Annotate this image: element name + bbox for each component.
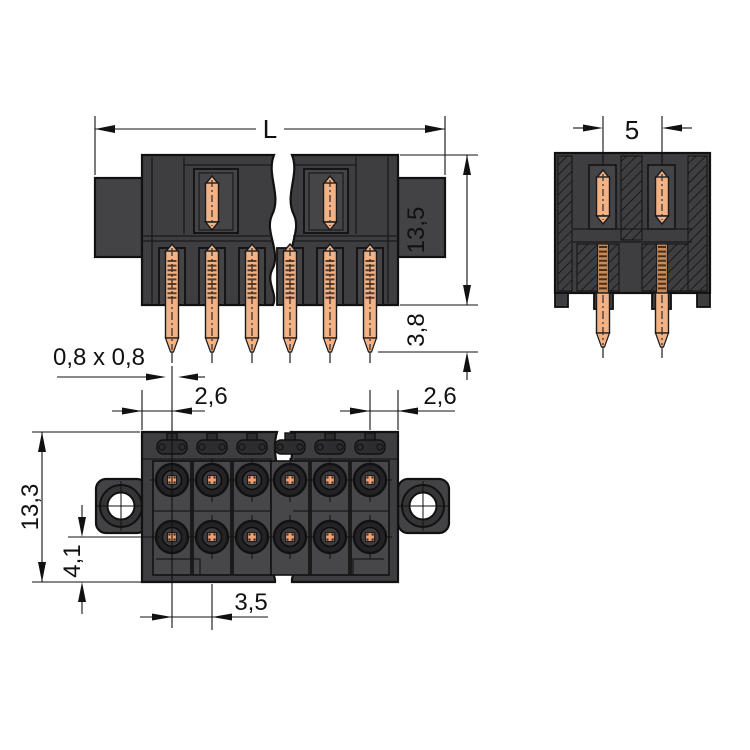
dimension-pin-cross-section: 0,8 x 0,8 [53,344,205,381]
bottom-right-flange [398,479,449,533]
technical-drawing-page: L 13,5 3,8 0,8 x 0,8 2,6 [0,0,750,750]
dim-label-pin-cross-section: 0,8 x 0,8 [53,344,145,371]
front-view [95,155,445,363]
dim-label-housing-height: 13,5 [403,207,430,254]
dimension-pin-protrusion: 3,8 [378,313,478,380]
side-feet [555,293,710,309]
dimension-last-pin-to-edge: 2,6 [340,383,457,430]
dim-label-pin-row-offset: 4,1 [59,544,86,577]
dim-label-last-pin-to-edge: 2,6 [423,383,456,410]
bottom-left-flange [96,479,147,533]
connector-dimension-drawing: L 13,5 3,8 0,8 x 0,8 2,6 [0,0,750,750]
dim-label-overall-length: L [263,114,277,144]
bottom-view [96,432,449,582]
dim-label-pin-pitch: 3,5 [234,589,267,616]
dimension-pin-pitch: 3,5 [140,584,268,630]
side-view [555,153,710,358]
dim-label-edge-to-first-pin: 2,6 [194,383,227,410]
dim-label-row-spacing: 5 [625,115,639,145]
dim-label-pin-protrusion: 3,8 [403,313,430,346]
dim-label-overall-depth: 13,3 [17,484,44,531]
front-left-lug [95,178,142,257]
